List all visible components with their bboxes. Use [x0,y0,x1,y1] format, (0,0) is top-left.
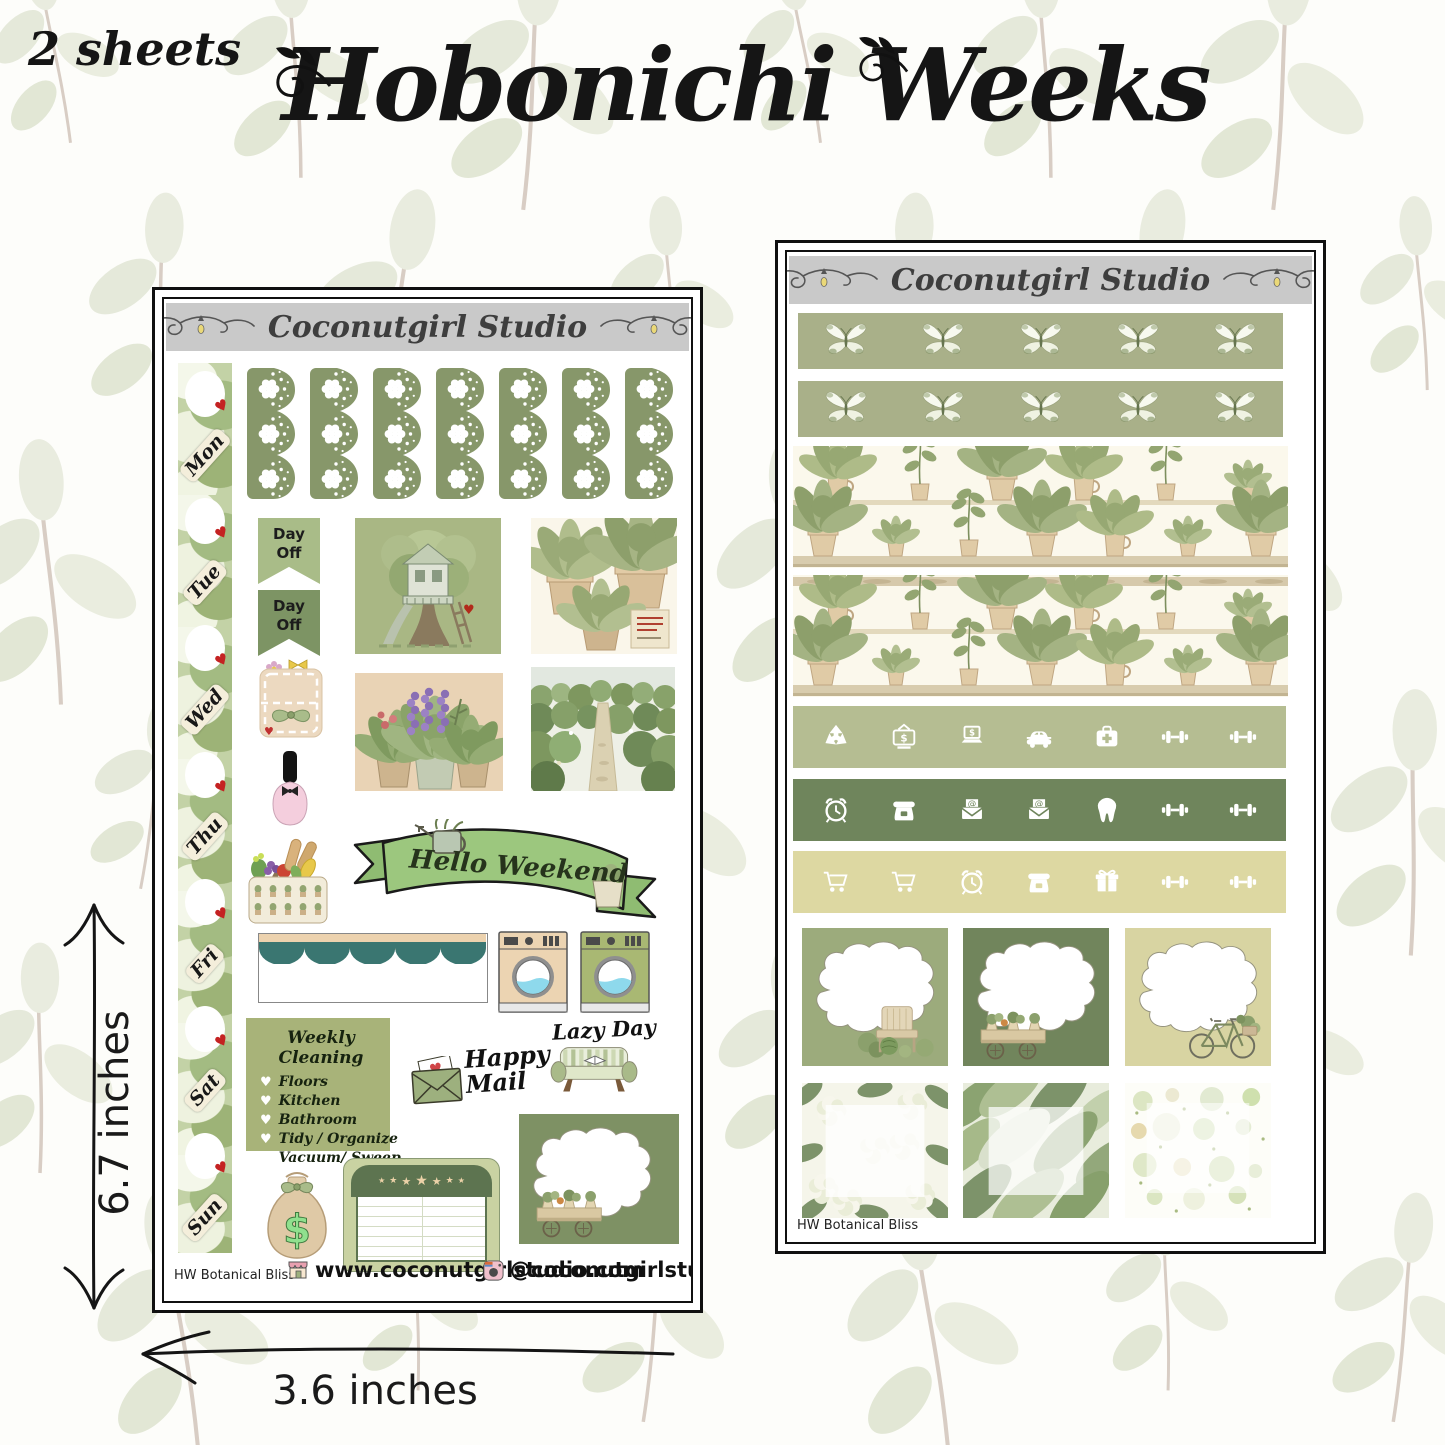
treehouse-illustration: ♥ [355,518,501,654]
butterfly-illustration [1116,320,1160,362]
butterfly-illustration [824,388,868,430]
checklist-item-label: Kitchen [279,1093,341,1109]
heart-checkbox: ♥ [260,1113,272,1128]
svg-text:♥: ♥ [463,603,475,618]
checklist-item-label: Bathroom [279,1112,357,1128]
heart-accent: ♥ [211,1157,231,1179]
weekly-cleaning-checklist-sticker: Weekly Cleaning ♥Floors♥Kitchen♥Bathroom… [246,1018,390,1151]
butterfly-illustration [1019,320,1063,362]
shopping-cart-icon [889,867,919,897]
scallop-border-card-sticker [258,933,488,1003]
day-label: Mon [178,427,232,484]
curl-flourish-icon [1220,265,1316,295]
label-box-bicycle [1125,928,1271,1066]
lace-border-sticker [433,365,487,503]
alarm-clock-icon [821,795,851,825]
washing-machine-sticker [498,931,568,1013]
day-off-label: Day Off [273,525,305,563]
dots-pattern-illustration [1125,1083,1271,1218]
butterfly-illustration [824,320,868,362]
butterfly-illustration [1213,320,1257,362]
kit-name-label: HW Botanical Bliss [797,1218,918,1233]
lace-border-sticker [370,365,424,503]
garden-path-illustration [531,667,675,791]
date-cover-circle: ♥ [185,371,225,417]
vine-flourish-icon [852,30,916,90]
plant-shelf-washi-strip [793,575,1288,697]
date-cover-circle: ♥ [185,1006,225,1052]
butterfly-illustration [1116,388,1160,430]
day-off-label: Day Off [273,597,305,635]
dumbbell-icon [1160,795,1190,825]
shop-icon [286,1258,310,1282]
heart-accent: ♥ [211,903,231,925]
sheet-header: Coconutgirl Studio [789,256,1312,304]
day-tab-wed: ♥Wed [178,617,232,744]
dumbbell-icon [1228,722,1258,752]
day-label: Sat [182,1067,228,1114]
shopping-cart-icon [821,867,851,897]
day-tab-sat: ♥Sat [178,998,232,1125]
curl-flourish-icon [162,312,258,342]
washing-machine-sticker [580,931,650,1013]
lace-border-sticker-row [244,365,676,503]
svg-text:$: $ [969,728,975,738]
checklist-items: ♥Floors♥Kitchen♥Bathroom♥Tidy / Organize… [260,1074,390,1166]
heart-accent: ♥ [211,395,231,417]
treehouse-sticker: ♥ [355,518,501,654]
telephone-icon [889,795,919,825]
icon-washi-strip: @@ [793,779,1286,841]
lace-border-sticker [244,365,298,503]
sheets-count-label: 2 sheets [28,22,241,76]
dumbbell-icon [1160,722,1190,752]
width-dimension-label: 3.6 inches [160,1368,590,1414]
date-cover-washi-strip: ♥Mon♥Tue♥Wed♥Thu♥Fri♥Sat♥Sun [178,363,232,1253]
sticker-sheet-washi-kit: Coconutgirl Studio $$@@ HW Botanical Bli… [775,240,1326,1254]
recycle-icon [821,722,851,752]
heart-accent: ♥ [211,522,231,544]
lavender-pots-sticker [355,673,503,791]
instagram-icon [482,1259,505,1282]
envelope-heart-icon: ♥ [409,1056,471,1106]
dumbbell-icon [1228,867,1258,897]
heart-checkbox: ♥ [260,1094,272,1109]
day-label: Fri [184,941,227,985]
laptop-money-icon: $ [957,722,987,752]
date-cover-circle: ♥ [185,752,225,798]
label-box-garden-bench [802,928,948,1066]
first-aid-icon [1092,722,1122,752]
grocery-basket-sticker [246,833,330,927]
kit-name-label: HW Botanical Bliss [174,1268,295,1283]
potted-plants-sticker [531,518,677,654]
curl-flourish-icon [785,265,881,295]
day-tab-fri: ♥Fri [178,871,232,998]
star-tracker-sticker: ★★★★★★★ [343,1158,500,1272]
butterfly-illustration [1019,388,1063,430]
date-cover-circle: ♥ [185,498,225,544]
lace-border-sticker [622,365,676,503]
day-label: Thu [180,810,230,863]
heart-checkbox: ♥ [260,1075,272,1090]
vine-flourish-icon [268,40,340,106]
bicycle-illustration [1179,996,1267,1062]
day-off-flag-sticker: Day Off [258,518,320,584]
hello-weekend-banner-sticker: Hello Weekend [349,819,661,919]
leaves-pattern-illustration [963,1083,1109,1218]
butterfly-washi-strip [798,381,1283,437]
garden-cart-illustration [527,1174,615,1240]
plant-shelf-washi-strip [793,446,1288,568]
garden-path-sticker [531,667,675,791]
telephone-icon [1024,867,1054,897]
potted-plants-illustration [531,518,677,654]
lace-border-sticker [496,365,550,503]
date-cover-circle: ♥ [185,879,225,925]
nail-polish-illustration [267,749,313,827]
day-tab-thu: ♥Thu [178,744,232,871]
washing-machine-green-illustration [580,931,650,1013]
email-icon: @ [957,795,987,825]
tooth-icon [1092,795,1122,825]
icon-washi-strip: $$ [793,706,1286,768]
money-bag-illustration: $ [258,1163,336,1263]
checklist-title: Weekly Cleaning [260,1028,382,1068]
lazy-day-label: Lazy Day [545,1014,662,1045]
curl-flourish-icon [597,312,693,342]
product-listing-image: 2 sheets Hobonichi Weeks Coconutgirl Stu… [0,0,1445,1445]
butterfly-illustration [921,320,965,362]
instagram-handle-text: @coconutgirlstudio [510,1258,693,1282]
sheet-footer: HW Botanical Bliss www.coconutgirlstudio… [164,1256,691,1290]
svg-text:♥: ♥ [264,725,274,738]
day-tab-tue: ♥Tue [178,490,232,617]
couch-illustration [546,1042,642,1098]
butterfly-illustration [1213,388,1257,430]
dumbbell-icon [1160,867,1190,897]
instagram-link: @coconutgirlstudio [482,1258,693,1282]
date-cover-circle: ♥ [185,625,225,671]
pattern-box-dots [1125,1083,1271,1218]
svg-text:$: $ [283,1207,311,1253]
date-cover-circle: ♥ [185,1133,225,1179]
day-label: Wed [179,682,232,737]
checklist-item-label: Tidy / Organize [279,1131,398,1147]
email-icon: @ [1024,795,1054,825]
car-icon [1024,722,1054,752]
money-bag-sticker: $ [258,1163,336,1263]
lazy-day-sticker: Lazy Day [546,1017,662,1103]
checklist-item-label: Floors [279,1074,328,1090]
garden-bench-illustration [854,996,942,1062]
day-off-flag-sticker: Day Off [258,590,320,656]
sheet-inner-frame: Coconutgirl Studio $$@@ HW Botanical Bli… [785,250,1316,1244]
washing-machine-beige-illustration [498,931,568,1013]
brand-name: Coconutgirl Studio [268,310,587,345]
happy-mail-sticker: ♥ Happy Mail [409,1044,539,1114]
page-title: Hobonichi Weeks [240,26,1250,144]
brand-name: Coconutgirl Studio [891,263,1210,298]
label-box-garden-cart [519,1114,679,1244]
tracker-table [356,1195,487,1262]
garden-cart-illustration [971,996,1059,1062]
heart-accent: ♥ [211,1030,231,1052]
checklist-item: ♥Bathroom [260,1112,390,1128]
checklist-item: ♥Tidy / Organize [260,1131,390,1147]
svg-text:$: $ [900,733,907,745]
dumbbell-icon [1228,795,1258,825]
pattern-box-hydrangea [802,1083,948,1218]
heart-accent: ♥ [211,649,231,671]
lavender-illustration [355,673,503,791]
happy-mail-label: Happy Mail [463,1041,552,1097]
day-tab-sun: ♥Sun [178,1125,232,1252]
scallop-garland-illustration [259,934,486,964]
day-label: Sun [180,1191,230,1243]
icon-washi-strip [793,851,1286,913]
butterfly-illustration [921,388,965,430]
gift-icon [1092,867,1122,897]
label-box-garden-cart [963,928,1109,1066]
checklist-item: ♥Floors [260,1074,390,1090]
alarm-clock-icon [957,867,987,897]
lace-border-sticker [559,365,613,503]
heart-checkbox: ♥ [260,1132,272,1147]
day-label: Tue [181,558,229,608]
sticker-book-sticker: ♥ [258,657,324,739]
height-dimension-label: 6.7 inches [92,963,138,1263]
checklist-item: ♥Kitchen [260,1093,390,1109]
sticker-book-illustration: ♥ [258,657,324,739]
heart-accent: ♥ [211,776,231,798]
hydrangea-pattern-illustration [802,1083,948,1218]
lace-border-sticker [307,365,361,503]
butterfly-washi-strip [798,313,1283,369]
day-tab-mon: ♥Mon [178,363,232,490]
pattern-box-leaves [963,1083,1109,1218]
sheet-header: Coconutgirl Studio [166,303,689,351]
grocery-basket-illustration [246,833,330,927]
nail-polish-sticker [267,749,313,827]
tracker-star-arch: ★★★★★★★ [351,1165,492,1197]
tv-money-icon: $ [889,722,919,752]
sheet-inner-frame: Coconutgirl Studio ♥Mon♥Tue♥Wed♥Thu♥Fri♥… [162,297,693,1303]
sticker-sheet-weekly-kit: Coconutgirl Studio ♥Mon♥Tue♥Wed♥Thu♥Fri♥… [152,287,703,1313]
